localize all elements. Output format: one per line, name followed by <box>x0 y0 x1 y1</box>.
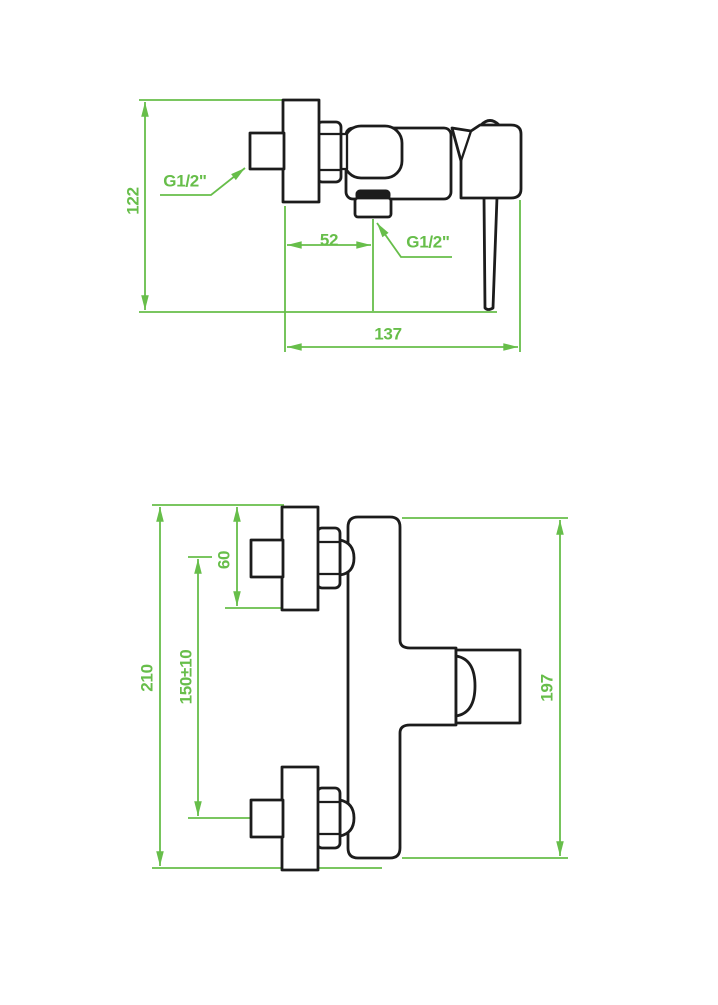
inlet-thread-label: G1/2" <box>163 172 206 191</box>
shower-outlet <box>355 198 391 217</box>
dim-52-label: 52 <box>320 231 338 250</box>
handle-body-side <box>452 125 521 198</box>
side-view-part <box>250 100 521 310</box>
dim-150-label: 150±10 <box>177 650 196 705</box>
mixer-body-front <box>348 517 456 858</box>
drawing-canvas: 122 G1/2" 52 G1/2" 137 <box>0 0 718 1000</box>
dim-122-label: 122 <box>124 187 143 214</box>
lower-escutcheon <box>282 767 318 870</box>
lower-hex-nut <box>317 788 340 848</box>
dim-210-label: 210 <box>138 664 157 691</box>
upper-hex-nut <box>317 528 340 588</box>
lower-inlet-pipe <box>251 800 283 837</box>
dim-137-label: 137 <box>374 325 401 344</box>
dim-60-label: 60 <box>215 551 234 569</box>
technical-drawing-page: 122 G1/2" 52 G1/2" 137 <box>0 0 718 1000</box>
upper-inlet-pipe <box>251 540 283 577</box>
dim-197-label: 197 <box>538 674 557 701</box>
side-view: 122 G1/2" 52 G1/2" 137 <box>124 100 522 352</box>
inlet-pipe-side <box>250 133 284 169</box>
upper-escutcheon <box>282 507 318 610</box>
front-view: 210 150±10 60 197 <box>138 505 569 870</box>
outlet-thread-label: G1/2" <box>406 233 449 252</box>
cartridge-dome <box>344 126 402 178</box>
wall-escutcheon-side <box>283 100 319 202</box>
lever-handle-side <box>484 197 497 310</box>
front-view-part <box>251 507 520 870</box>
hex-nut-side <box>317 122 341 182</box>
